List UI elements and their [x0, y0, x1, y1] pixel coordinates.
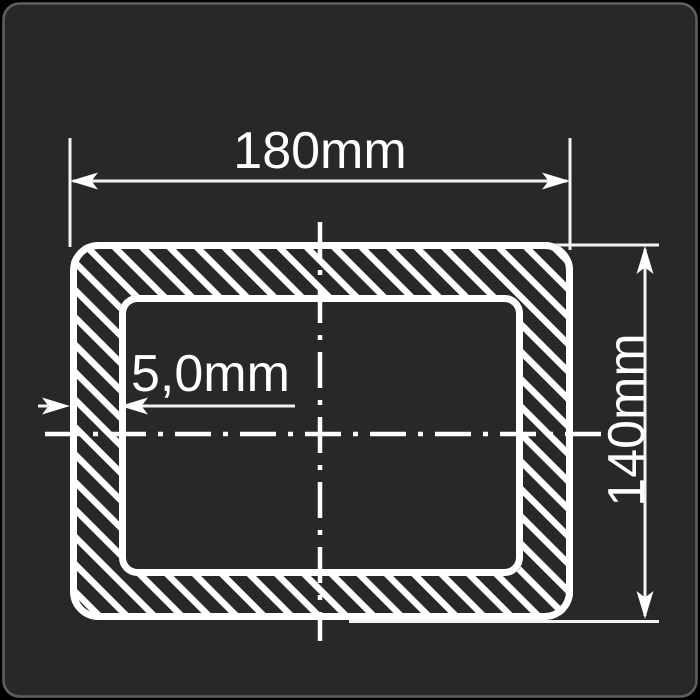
width-dimension-label: 180mm: [233, 122, 406, 180]
thickness-dimension-label: 5,0mm: [131, 345, 290, 403]
height-dimension-label: 140mm: [598, 333, 656, 506]
technical-drawing-canvas: 180mm 140mm 5,0mm: [0, 0, 700, 700]
drawing-svg: 180mm 140mm 5,0mm: [0, 0, 700, 700]
